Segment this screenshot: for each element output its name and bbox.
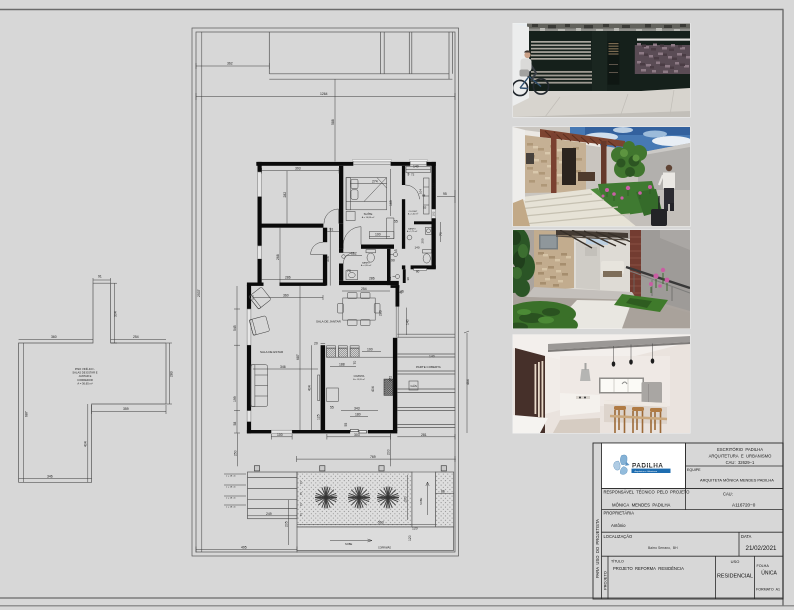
svg-text:91: 91	[330, 228, 334, 232]
svg-text:A = 36,65 m²: A = 36,65 m²	[77, 381, 92, 385]
svg-text:A = 13,85 m²: A = 13,85 m²	[353, 378, 365, 381]
svg-text:282: 282	[283, 192, 287, 198]
svg-text:182: 182	[351, 252, 357, 256]
svg-text:CAU: 32629−1: CAU: 32629−1	[726, 460, 755, 465]
svg-text:90: 90	[391, 259, 395, 263]
svg-text:495: 495	[241, 546, 247, 550]
svg-text:e = 18 cm: e = 18 cm	[226, 498, 236, 500]
svg-text:SOBE: SOBE	[419, 498, 423, 505]
svg-text:360: 360	[51, 335, 57, 339]
svg-text:346: 346	[47, 474, 53, 478]
svg-text:PISO VINÍLICO -: PISO VINÍLICO -	[75, 367, 95, 371]
svg-text:199: 199	[233, 396, 237, 402]
svg-text:44: 44	[407, 172, 411, 176]
svg-text:e = 18 cm: e = 18 cm	[226, 487, 236, 489]
svg-text:687: 687	[25, 411, 29, 417]
svg-text:PARTE COBERTA: PARTE COBERTA	[416, 365, 441, 369]
svg-text:DATA: DATA	[741, 534, 752, 539]
svg-text:404: 404	[308, 385, 312, 391]
svg-text:70: 70	[347, 269, 351, 273]
svg-text:81: 81	[388, 276, 392, 280]
svg-text:272: 272	[389, 376, 393, 382]
svg-text:283: 283	[379, 310, 383, 316]
svg-text:ÚNICA: ÚNICA	[761, 570, 777, 577]
svg-text:PROPRIETÁRIA: PROPRIETÁRIA	[604, 511, 635, 516]
svg-text:180: 180	[355, 413, 361, 417]
svg-text:249: 249	[266, 512, 272, 516]
svg-text:Antônio: Antônio	[611, 523, 626, 528]
svg-text:SALA DE JANTAR: SALA DE JANTAR	[316, 320, 342, 324]
svg-text:A116720−0: A116720−0	[732, 503, 756, 508]
svg-text:SALA DE ESTAR: SALA DE ESTAR	[260, 350, 284, 354]
svg-text:283: 283	[169, 371, 173, 377]
svg-text:SOBE: SOBE	[345, 542, 352, 546]
svg-text:70: 70	[439, 232, 443, 236]
svg-text:545: 545	[233, 325, 237, 331]
svg-text:102: 102	[432, 211, 436, 216]
svg-text:346: 346	[280, 365, 286, 369]
svg-text:120: 120	[412, 527, 418, 531]
svg-text:USO: USO	[731, 559, 740, 564]
svg-text:A = 10,85 m²: A = 10,85 m²	[362, 216, 375, 219]
svg-text:Bairro Serrano, BH: Bairro Serrano, BH	[648, 546, 678, 550]
svg-text:205: 205	[284, 521, 288, 527]
svg-text:268: 268	[276, 254, 280, 260]
svg-text:46: 46	[400, 290, 404, 294]
svg-text:254: 254	[361, 287, 367, 291]
svg-text:SUÍTE: SUÍTE	[364, 212, 373, 216]
svg-text:393: 393	[295, 167, 301, 171]
svg-text:COZINHA: COZINHA	[354, 375, 365, 378]
svg-text:A = 1,60 m²: A = 1,60 m²	[408, 213, 419, 216]
svg-text:FORMATO A1: FORMATO A1	[756, 588, 780, 592]
svg-text:100: 100	[367, 348, 373, 352]
svg-text:687: 687	[296, 354, 300, 360]
svg-text:CORRIMÃO: CORRIMÃO	[378, 547, 391, 550]
svg-text:286: 286	[369, 277, 375, 281]
svg-text:464: 464	[466, 379, 470, 385]
svg-text:286: 286	[285, 276, 291, 280]
svg-text:254: 254	[133, 335, 139, 339]
svg-text:TÍTULO: TÍTULO	[611, 560, 624, 564]
svg-text:RESPONSÁVEL TÉCNICO PELO PR: RESPONSÁVEL TÉCNICO PELO PROJETO	[604, 490, 690, 495]
svg-text:ARQUITETURA E URBANISMO: ARQUITETURA E URBANISMO	[709, 454, 773, 459]
svg-text:120: 120	[408, 535, 412, 541]
svg-text:303: 303	[354, 433, 360, 437]
svg-text:304: 304	[114, 311, 118, 317]
svg-text:281: 281	[421, 433, 427, 437]
svg-text:ARQUITETA MÔNICA MENDES PADILH: ARQUITETA MÔNICA MENDES PADILHA	[700, 478, 774, 483]
svg-text:72: 72	[411, 173, 415, 177]
svg-text:70: 70	[353, 361, 357, 365]
svg-text:360: 360	[283, 294, 289, 298]
svg-text:55: 55	[344, 423, 348, 427]
svg-text:404: 404	[84, 441, 88, 447]
svg-text:42: 42	[394, 249, 398, 253]
svg-text:55: 55	[330, 406, 334, 410]
svg-text:PARA USO DO PROJETISTA: PARA USO DO PROJETISTA	[595, 519, 600, 578]
svg-text:100: 100	[375, 233, 381, 237]
svg-text:362: 362	[227, 62, 233, 66]
svg-text:GÁS: GÁS	[411, 384, 417, 388]
svg-text:SALAS DE ESTAR E: SALAS DE ESTAR E	[72, 371, 97, 375]
svg-text:RESIDENCIAL: RESIDENCIAL	[717, 574, 753, 580]
svg-text:JANTAR E: JANTAR E	[79, 374, 92, 378]
svg-text:PADILHA: PADILHA	[632, 462, 663, 469]
svg-text:1264: 1264	[320, 92, 328, 96]
svg-text:e = 18 cm: e = 18 cm	[226, 476, 236, 478]
svg-text:140: 140	[415, 246, 420, 250]
svg-text:20: 20	[314, 342, 318, 346]
svg-text:91: 91	[98, 275, 102, 279]
svg-text:250: 250	[233, 450, 237, 456]
svg-text:188: 188	[339, 363, 345, 367]
svg-text:ESCRITÓRIO PADILHA: ESCRITÓRIO PADILHA	[717, 447, 763, 452]
svg-text:2537: 2537	[197, 289, 201, 297]
svg-text:MÔNICA MENDES PADILHA: MÔNICA MENDES PADILHA	[612, 503, 671, 508]
svg-text:58: 58	[233, 422, 237, 426]
svg-text:140: 140	[413, 165, 419, 169]
svg-text:125: 125	[317, 414, 321, 420]
svg-text:21/02/2021: 21/02/2021	[746, 545, 778, 552]
svg-text:PROJETO: PROJETO	[602, 571, 607, 590]
svg-text:CAU:: CAU:	[723, 492, 733, 497]
svg-text:95: 95	[443, 192, 447, 196]
svg-text:769: 769	[370, 455, 376, 459]
svg-text:169: 169	[389, 200, 393, 206]
svg-text:274: 274	[372, 180, 378, 184]
svg-text:PROJETO REFORMA RESIDÊNCIA: PROJETO REFORMA RESIDÊNCIA	[613, 566, 684, 571]
svg-text:359: 359	[123, 407, 129, 411]
svg-text:A = 1,75 m²: A = 1,75 m²	[407, 230, 418, 233]
svg-text:343: 343	[354, 407, 360, 411]
svg-text:86: 86	[441, 490, 445, 494]
svg-text:55: 55	[423, 206, 427, 210]
svg-text:140: 140	[429, 355, 435, 359]
svg-text:e = 18 cm: e = 18 cm	[226, 507, 236, 509]
svg-text:140: 140	[406, 319, 410, 325]
svg-text:200: 200	[387, 449, 391, 455]
svg-text:55: 55	[394, 220, 398, 224]
svg-text:304: 304	[326, 256, 330, 262]
svg-text:Arquitetura e Urbanismo: Arquitetura e Urbanismo	[635, 470, 658, 473]
svg-text:FOLHA: FOLHA	[757, 564, 770, 568]
svg-text:563: 563	[378, 521, 384, 525]
svg-text:A = 4,90 m²: A = 4,90 m²	[361, 264, 372, 267]
svg-text:30: 30	[406, 277, 410, 281]
svg-text:68: 68	[422, 194, 426, 198]
svg-text:588: 588	[331, 119, 335, 125]
svg-text:270: 270	[403, 496, 407, 502]
svg-text:LOCALIZAÇÃO: LOCALIZAÇÃO	[604, 534, 633, 539]
svg-text:100: 100	[277, 433, 283, 437]
svg-text:404: 404	[371, 386, 375, 392]
svg-text:172: 172	[432, 183, 436, 188]
svg-text:CORREDOR: CORREDOR	[77, 378, 93, 382]
svg-text:EQUIPE: EQUIPE	[687, 468, 701, 472]
svg-text:200: 200	[421, 238, 425, 243]
